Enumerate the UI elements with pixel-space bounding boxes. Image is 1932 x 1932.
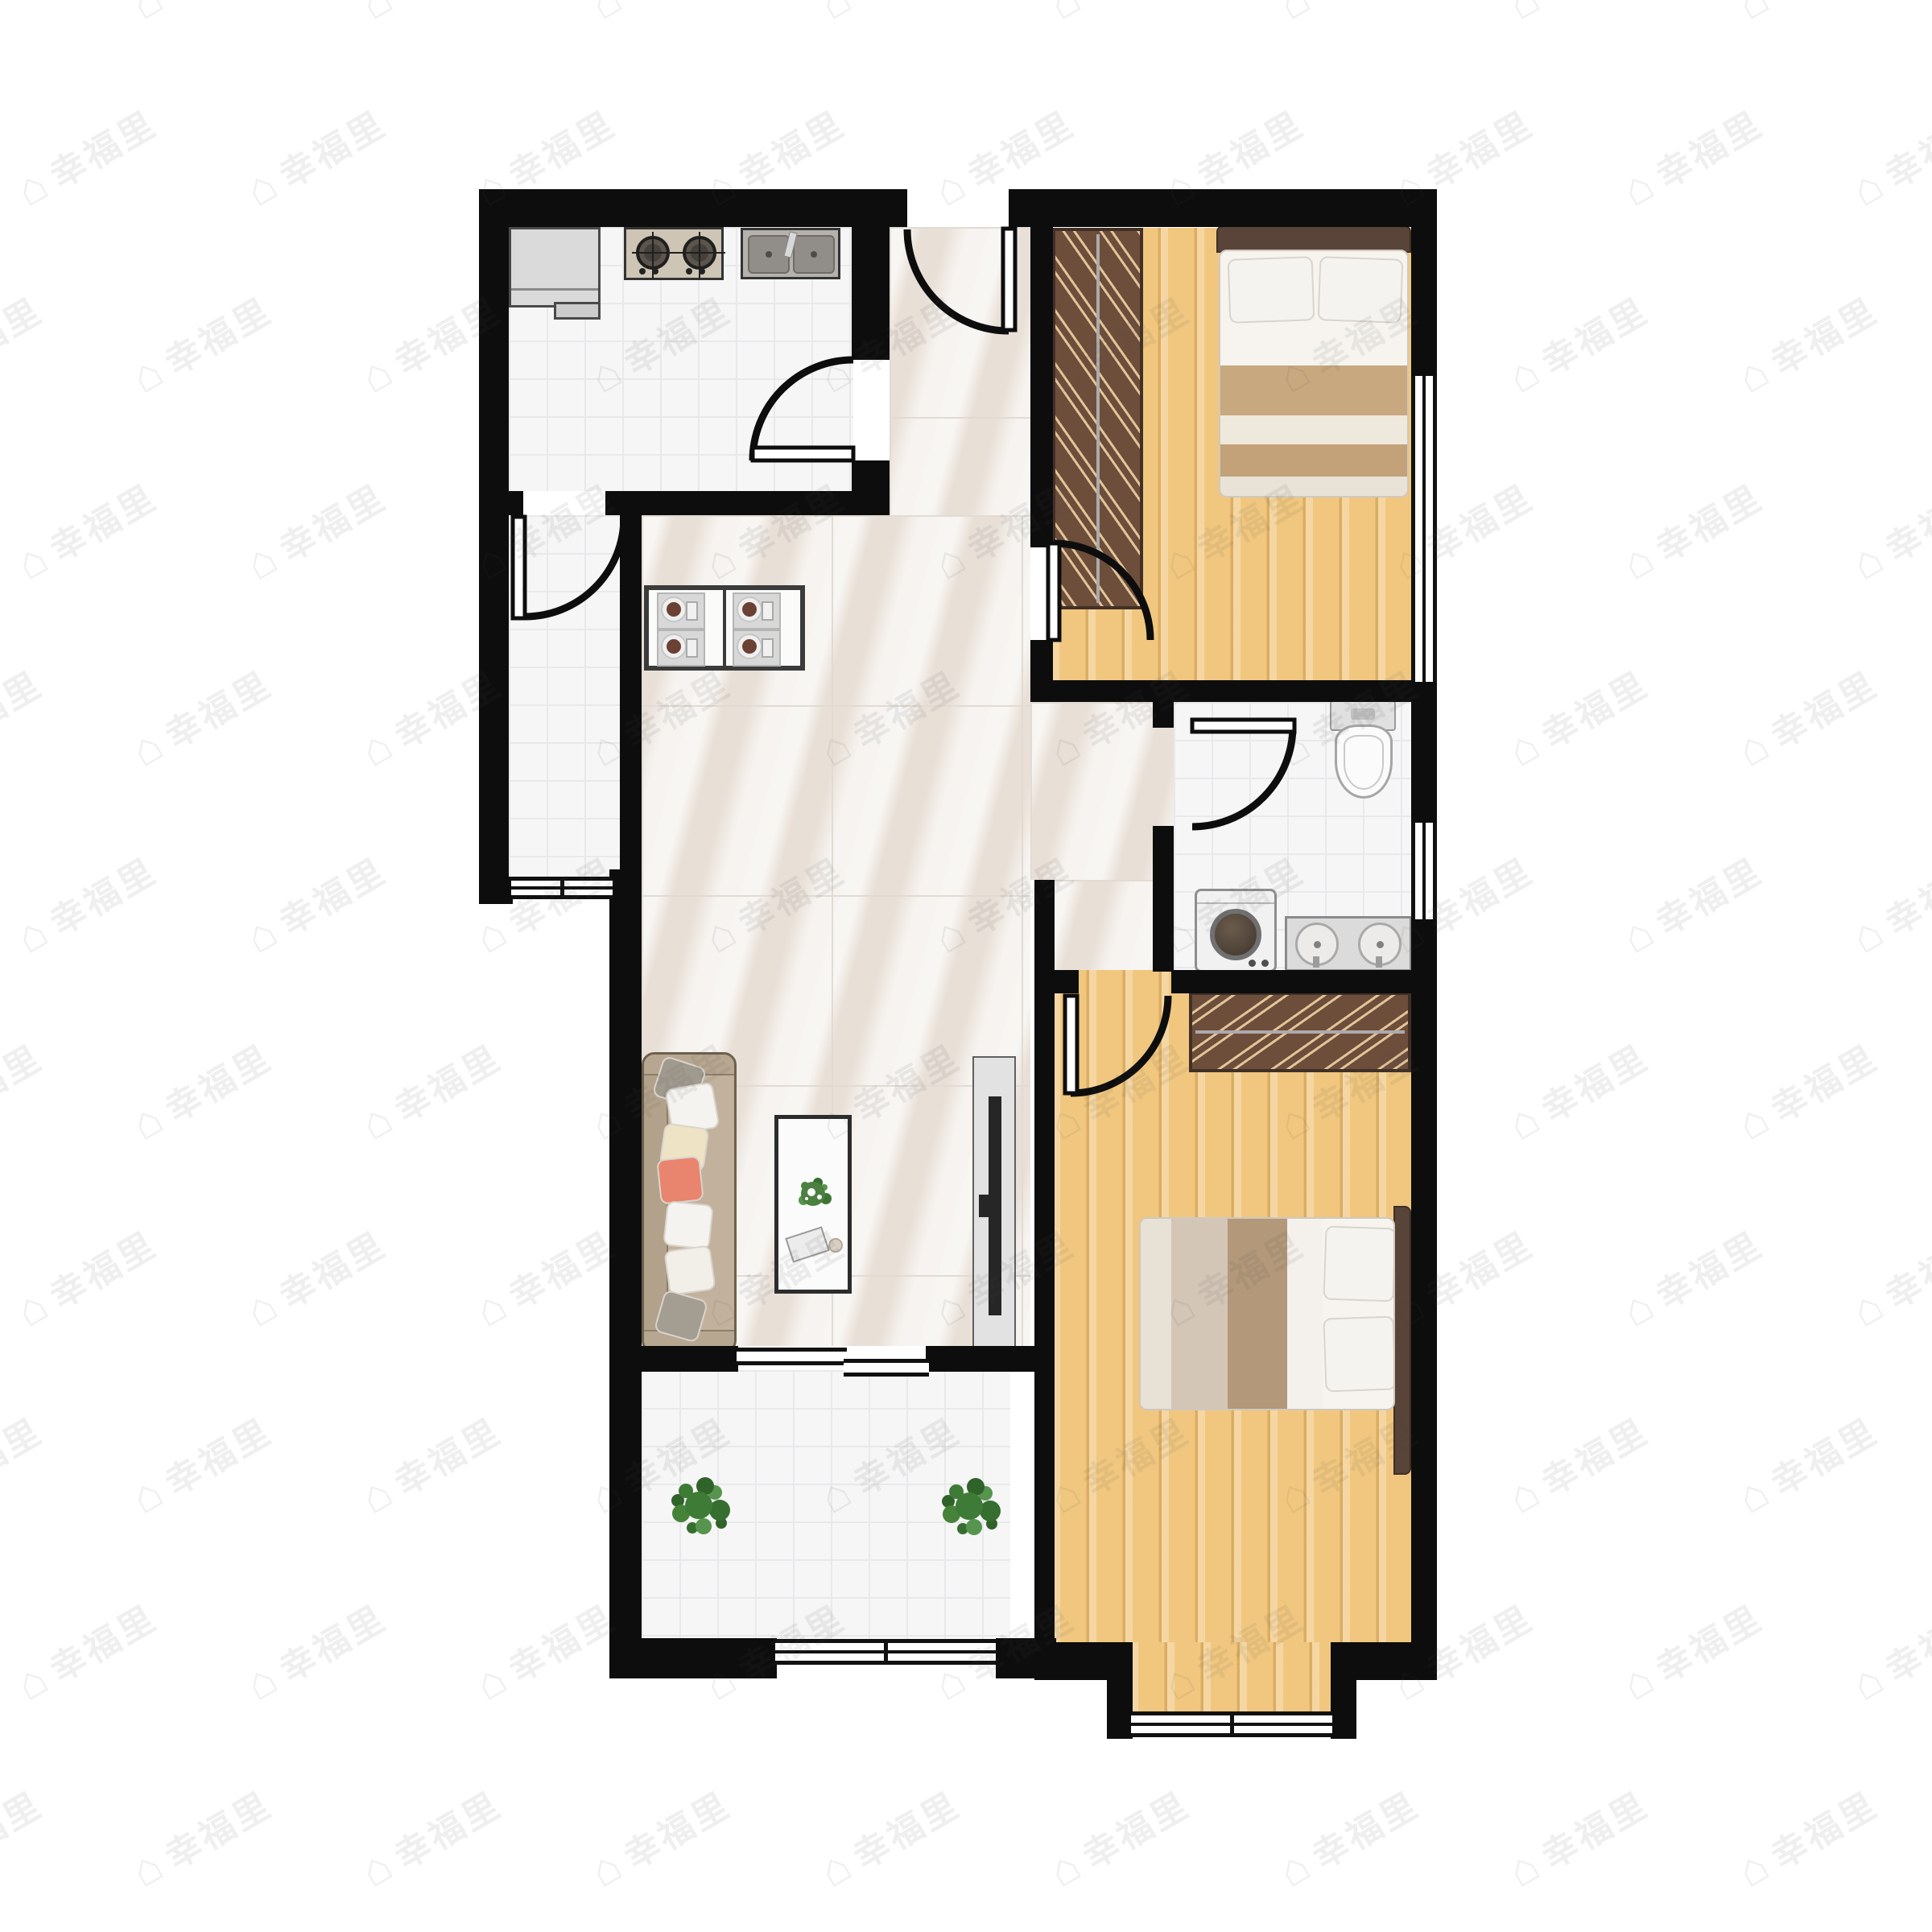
- entrance-door-arc: [907, 229, 1009, 331]
- bathroom-door-leaf: [1192, 720, 1294, 732]
- door-swings: [0, 0, 1932, 1932]
- kitchen-door-arc: [753, 360, 853, 460]
- bedroom-south-door-arc: [1071, 996, 1168, 1093]
- kitchen-door-leaf: [753, 448, 853, 460]
- storage-door-leaf: [513, 517, 525, 618]
- bedroom-north-door-leaf: [1048, 543, 1059, 640]
- bathroom-door-arc: [1192, 726, 1293, 827]
- floor-plan: ⌂幸福里⌂幸福里⌂幸福里⌂幸福里⌂幸福里⌂幸福里⌂幸福里⌂幸福里⌂幸福里⌂幸福里…: [0, 0, 1932, 1932]
- storage-door-arc: [525, 518, 624, 617]
- bedroom-south-door-leaf: [1065, 996, 1077, 1093]
- entrance-door-leaf: [1003, 229, 1015, 330]
- bedroom-north-door-arc: [1054, 543, 1150, 640]
